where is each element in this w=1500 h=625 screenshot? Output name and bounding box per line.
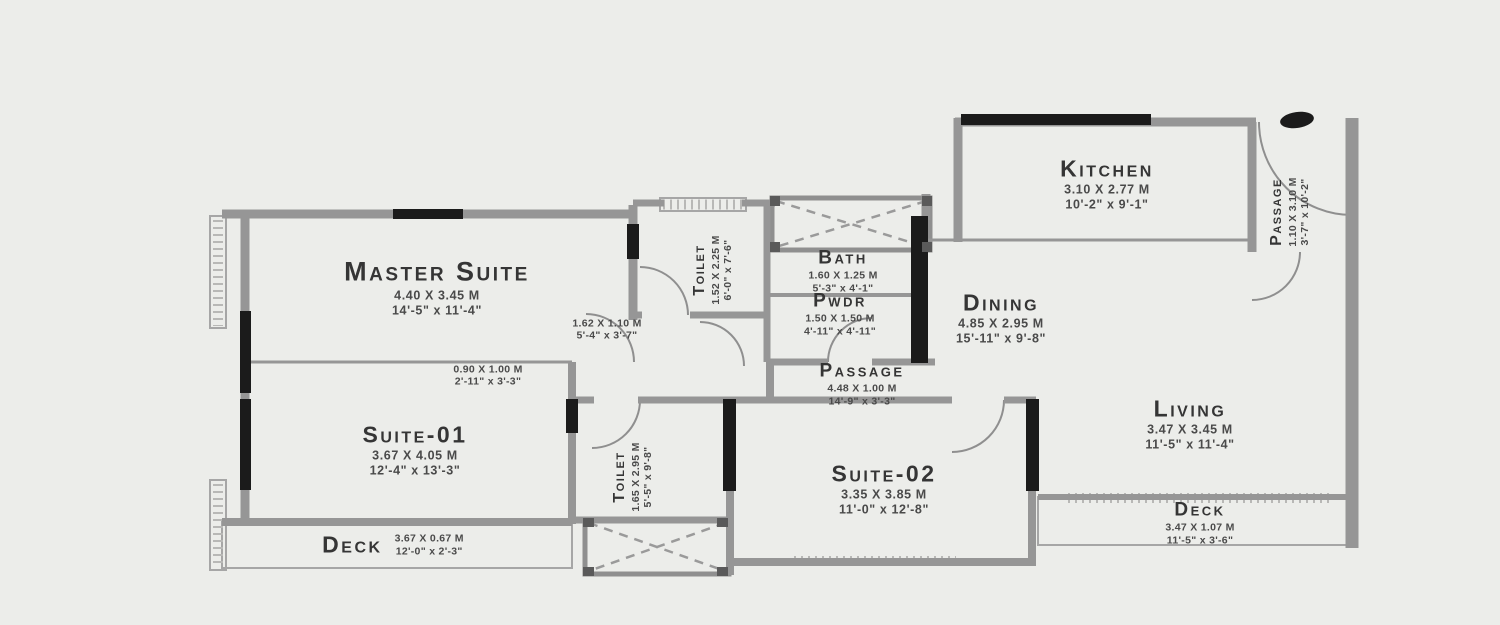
room-dim-imperial: 5'-4" x 3'-7" [572,330,641,342]
room-label-suite-01: Suite-01 3.67 X 4.05 M 12'-4" x 13'-3" [362,422,467,479]
room-dim-metric: 1.60 X 1.25 M [808,270,877,282]
room-label-dining: Dining 4.85 X 2.95 M 15'-11" x 9'-8" [956,290,1046,347]
room-label-pwdr: Pwdr 1.50 X 1.50 M 4'-11" x 4'-11" [804,290,876,337]
room-dim-metric: 1.50 X 1.50 M [804,313,876,325]
room-name: Passage [819,360,904,382]
room-label-living: Living 3.47 X 3.45 M 11'-5" x 11'-4" [1145,396,1234,453]
room-label-toilet-bottom: Toilet 1.65 X 2.95 M 5'-5" x 9'-8" [611,442,655,511]
room-name: Passage [1268,177,1287,246]
dim-label-lobby: 1.62 X 1.10 M 5'-4" x 3'-7" [572,318,641,343]
room-dim-imperial: 15'-11" x 9'-8" [956,332,1046,347]
room-dim-imperial: 14'-5" x 11'-4" [344,303,530,318]
room-label-kitchen: Kitchen 3.10 X 2.77 M 10'-2" x 9'-1" [1060,156,1154,213]
room-dim-metric: 0.90 X 1.00 M [453,364,522,376]
room-label-passage-center: Passage 4.48 X 1.00 M 14'-9" x 3'-3" [819,360,904,407]
room-dim-imperial: 4'-11" x 4'-11" [804,325,876,337]
room-name: Bath [808,247,877,269]
room-dim-imperial: 11'-0" x 12'-8" [831,503,936,518]
room-name: Pwdr [804,290,876,312]
room-name: Deck [322,531,382,558]
room-name: Master Suite [344,256,530,288]
room-dim-metric: 3.67 X 0.67 M [395,533,464,545]
room-dim-metric: 3.10 X 2.77 M [1060,183,1154,198]
room-name: Suite-01 [362,422,467,449]
room-name: Dining [956,290,1046,317]
room-dim-imperial: 5'-5" x 9'-8" [642,442,654,511]
room-dim-metric: 1.52 X 2.25 M [710,235,722,304]
room-dim-imperial: 2'-11" x 3'-3" [453,376,522,388]
room-dim-metric: 4.85 X 2.95 M [956,317,1046,332]
room-dim-metric: 4.48 X 1.00 M [819,383,904,395]
room-dim-metric: 3.47 X 3.45 M [1145,423,1234,438]
room-name: Suite-02 [831,461,936,488]
room-dim-imperial: 12'-4" x 13'-3" [362,464,467,479]
room-dim-imperial: 11'-5" x 11'-4" [1145,438,1234,453]
room-dim-metric: 3.35 X 3.85 M [831,488,936,503]
room-dim-metric: 1.65 X 2.95 M [630,442,642,511]
room-label-deck-left: Deck 3.67 X 0.67 M 12'-0" x 2'-3" [322,531,464,558]
room-label-suite-02: Suite-02 3.35 X 3.85 M 11'-0" x 12'-8" [831,461,936,518]
room-dim-imperial: 3'-7" x 10'-2" [1299,177,1311,246]
room-name: Living [1145,396,1234,423]
room-label-bath: Bath 1.60 X 1.25 M 5'-3" x 4'-1" [808,247,877,294]
room-dim-imperial: 14'-9" x 3'-3" [819,395,904,407]
room-dim-imperial: 12'-0" x 2'-3" [395,545,464,557]
room-name: Deck [1165,499,1234,521]
room-dim-metric: 1.62 X 1.10 M [572,318,641,330]
room-label-deck-right: Deck 3.47 X 1.07 M 11'-5" x 3'-6" [1165,499,1234,546]
room-dim-metric: 3.47 X 1.07 M [1165,522,1234,534]
room-dim-metric: 1.10 X 3.10 M [1287,177,1299,246]
floorplan-drawing [0,0,1500,625]
room-name: Toilet [611,442,630,511]
room-label-passage-right: Passage 1.10 X 3.10 M 3'-7" x 10'-2" [1268,177,1312,246]
room-name: Toilet [691,235,710,304]
room-name: Kitchen [1060,156,1154,183]
room-dim-metric: 3.67 X 4.05 M [362,449,467,464]
room-dim-imperial: 11'-5" x 3'-6" [1165,534,1234,546]
room-dim-imperial: 6'-0" x 7'-6" [722,235,734,304]
floor-plan: Master Suite 4.40 X 3.45 M 14'-5" x 11'-… [0,0,1500,625]
room-dim-metric: 4.40 X 3.45 M [344,288,530,303]
room-label-master-suite: Master Suite 4.40 X 3.45 M 14'-5" x 11'-… [344,256,530,317]
room-label-toilet-top: Toilet 1.52 X 2.25 M 6'-0" x 7'-6" [691,235,735,304]
room-dim-imperial: 10'-2" x 9'-1" [1060,198,1154,213]
dim-label-entry: 0.90 X 1.00 M 2'-11" x 3'-3" [453,364,522,389]
